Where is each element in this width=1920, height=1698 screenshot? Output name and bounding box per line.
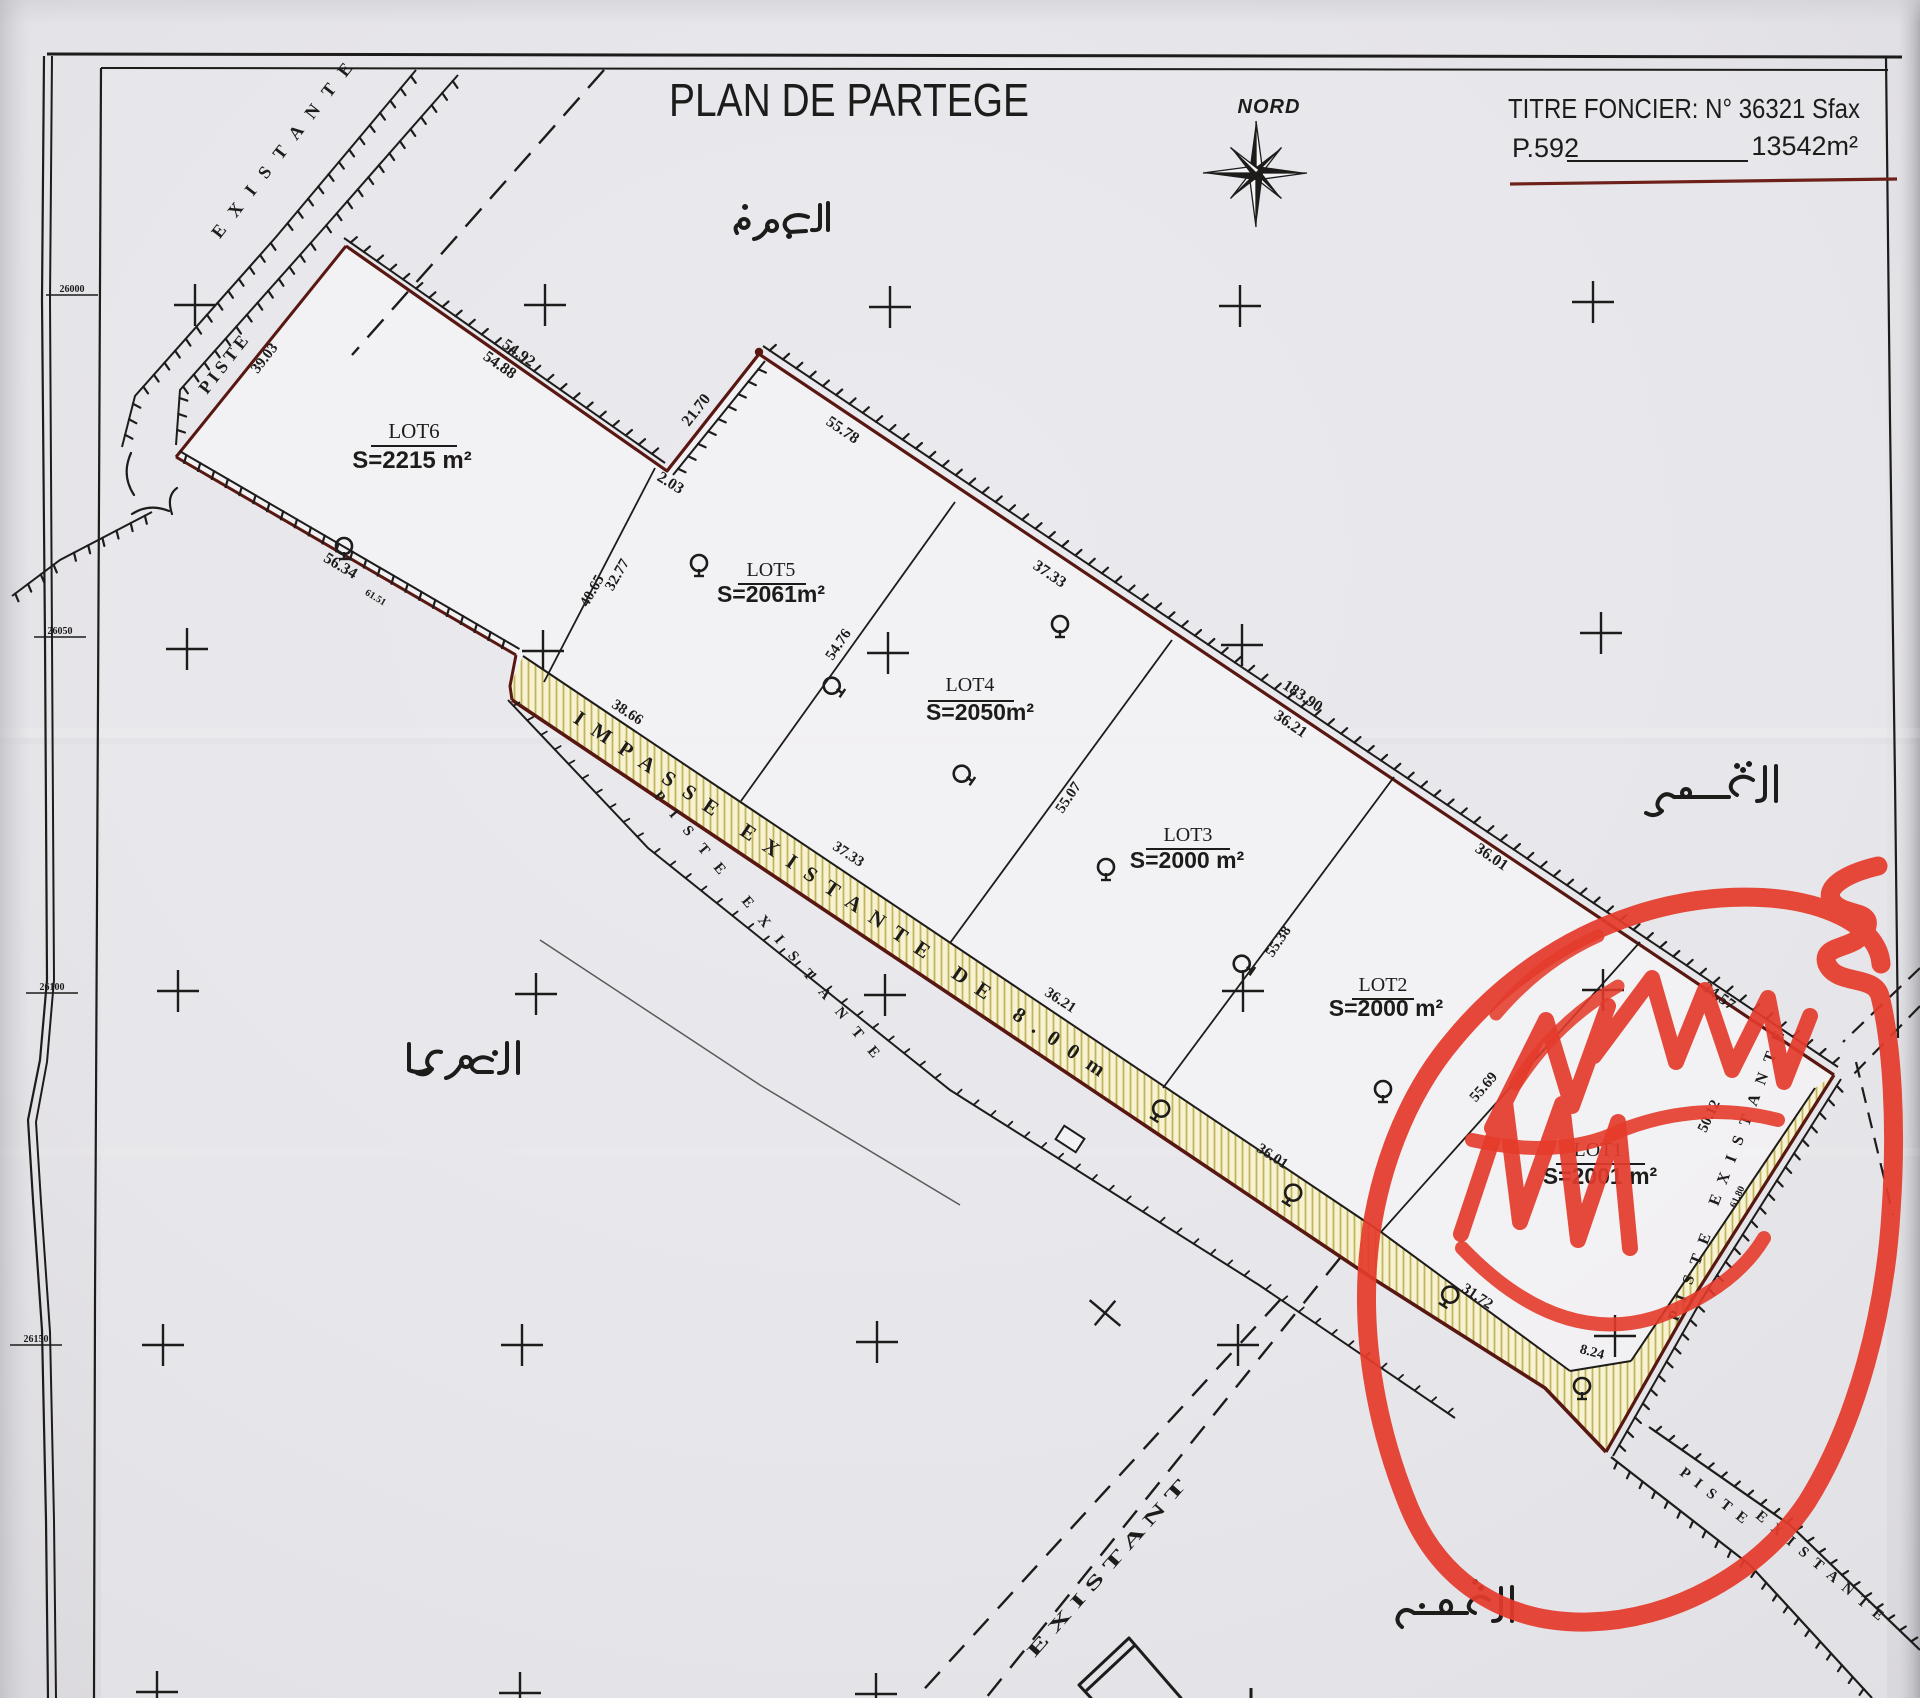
svg-text:S=2061m²: S=2061m²	[717, 581, 825, 607]
svg-text:S=2050m²: S=2050m²	[926, 699, 1034, 725]
svg-text:S=2000 m²: S=2000 m²	[1130, 847, 1245, 873]
svg-text:LOT6: LOT6	[388, 419, 439, 443]
svg-text:LOT5: LOT5	[747, 559, 796, 581]
svg-text:TITRE FONCIER: N° 36321 Sfax: TITRE FONCIER: N° 36321 Sfax	[1508, 93, 1860, 124]
svg-text:P.592: P.592	[1512, 133, 1579, 163]
svg-text:LOT2: LOT2	[1359, 974, 1408, 996]
svg-text:LOT3: LOT3	[1164, 824, 1213, 846]
svg-text:S=2215 m²: S=2215 m²	[352, 447, 471, 474]
svg-text:PLAN DE PARTEGE: PLAN DE PARTEGE	[669, 74, 1029, 126]
svg-text:NORD: NORD	[1238, 96, 1301, 118]
svg-text:26150: 26150	[24, 1334, 49, 1345]
svg-text:26000: 26000	[60, 284, 85, 295]
svg-text:26100: 26100	[40, 982, 65, 993]
svg-text:S=2000 m²: S=2000 m²	[1329, 995, 1444, 1021]
svg-text:26050: 26050	[48, 626, 73, 637]
svg-text:13542m²: 13542m²	[1751, 131, 1858, 161]
svg-text:LOT4: LOT4	[946, 674, 995, 696]
